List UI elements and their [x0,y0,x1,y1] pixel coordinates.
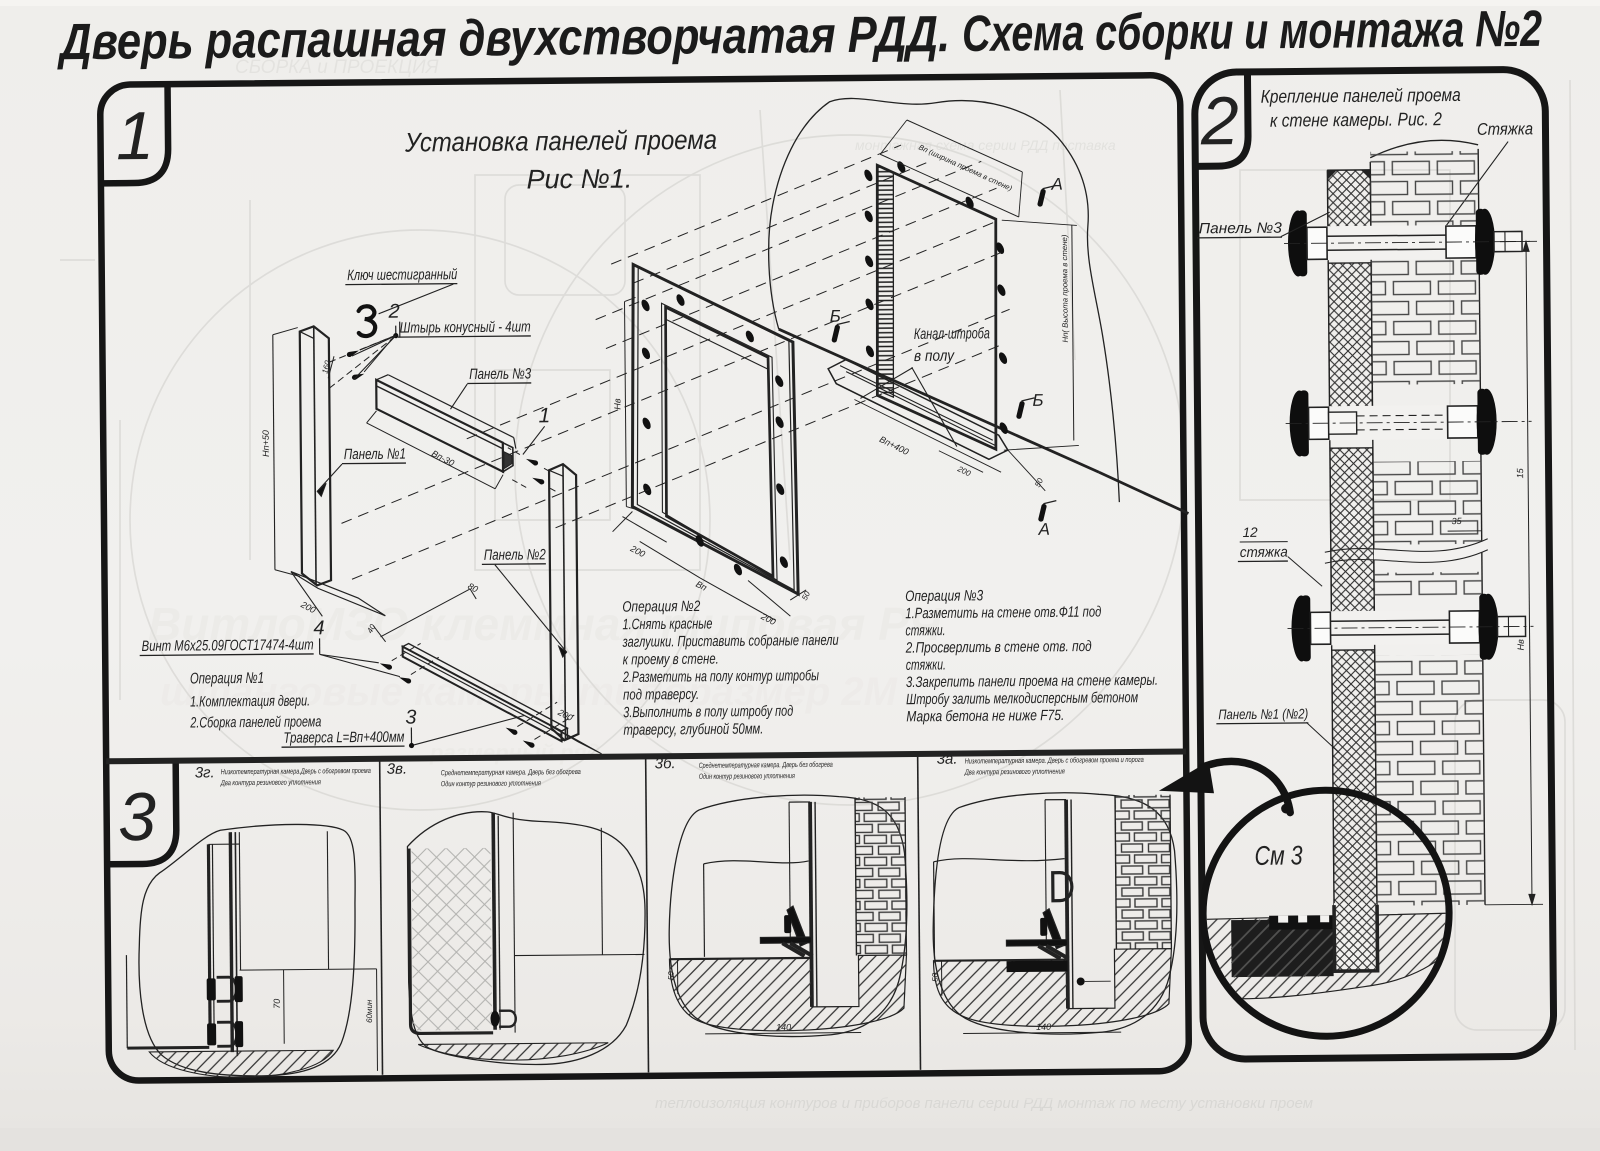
svg-text:Среднетемпературная камера. Дв: Среднетемпературная камера. Дверь без об… [441,767,581,777]
svg-text:Нв: Нв [1516,639,1526,651]
svg-text:Среднетемпературная камера. Дв: Среднетемпературная камера. Дверь без об… [699,760,833,770]
svg-text:80: 80 [466,581,479,594]
svg-text:60мин: 60мин [365,999,374,1023]
svg-text:35: 35 [1451,516,1462,526]
svg-text:2: 2 [1200,83,1240,159]
svg-text:140: 140 [776,1022,791,1032]
svg-text:Б: Б [1032,391,1043,410]
svg-text:1: 1 [538,404,550,427]
svg-text:Операция №1: Операция №1 [190,670,264,688]
svg-text:Схема сборки и монтажа №2: Схема сборки и монтажа №2 [962,0,1542,62]
svg-text:Винт М6х25.09ГОСТ17474-4шт: Винт М6х25.09ГОСТ17474-4шт [142,636,314,655]
svg-text:50: 50 [1033,476,1045,489]
svg-text:к стене камеры. Рис. 2: к стене камеры. Рис. 2 [1270,108,1443,131]
svg-text:Стяжка: Стяжка [1477,119,1533,139]
svg-text:Операция №3: Операция №3 [905,587,984,605]
svg-text:А: А [1038,520,1051,539]
svg-text:под траверсу.: под траверсу. [623,686,699,704]
svg-text:Траверса L=Вп+400мм: Траверса L=Вп+400мм [283,729,404,747]
svg-text:Рис №1.: Рис №1. [526,164,632,195]
svg-text:монтажная схема серии РДД пост: монтажная схема серии РДД поставка [855,137,1116,153]
svg-text:1: 1 [116,98,155,174]
svg-text:2.Просверлить в стене отв. п: 2.Просверлить в стене отв. под [905,638,1092,657]
svg-text:стяжки.: стяжки. [905,622,945,639]
svg-text:Панель №3: Панель №3 [1199,220,1283,238]
svg-text:Ключ шестигранный: Ключ шестигранный [347,266,458,284]
svg-text:3а.: 3а. [937,751,958,768]
svg-text:Б: Б [830,307,841,326]
svg-text:траверсу, глубиной 50мм.: траверсу, глубиной 50мм. [623,721,763,739]
svg-text:в полу: в полу [914,348,955,365]
svg-text:50: 50 [931,972,940,982]
svg-text:1.Разметить на стене отв.Ф11 п: 1.Разметить на стене отв.Ф11 под [905,603,1101,622]
svg-text:заглушки. Приставить собраные: заглушки. Приставить собраные панели [622,632,839,651]
svg-text:3: 3 [118,779,157,855]
svg-text:3в.: 3в. [387,761,407,778]
svg-text:15: 15 [1515,467,1525,478]
svg-text:размерный ряд: размерный ряд [429,740,600,765]
svg-text:Штробу залить мелкодисперсным: Штробу залить мелкодисперсным бетоном [906,689,1138,708]
svg-text:Панель №2: Панель №2 [484,546,547,564]
svg-text:3: 3 [405,706,416,728]
svg-text:Нв: Нв [612,398,622,410]
svg-text:Нп( Высота проема в стене): Нп( Высота проема в стене) [1060,234,1070,342]
svg-text:200: 200 [628,543,647,559]
svg-text:2: 2 [387,301,399,323]
svg-text:Вп-30: Вп-30 [430,448,456,468]
svg-text:Один контур резинового уплотне: Один контур резинового уплотнения [441,778,541,788]
svg-text:140: 140 [1036,1022,1051,1032]
svg-text:3.Выполнить в полу штробу под: 3.Выполнить в полу штробу под [623,703,793,722]
svg-text:Дверь распашная двухстворчатая: Дверь распашная двухстворчатая РДД. [56,5,950,70]
svg-text:2.Разметить на полу контур штр: 2.Разметить на полу контур штробы [622,667,819,686]
svg-text:3.Закрепить панели проема на с: 3.Закрепить панели проема на стене камер… [906,672,1158,691]
svg-text:Операция №2: Операция №2 [622,598,701,616]
svg-text:1.Комплектация двери.: 1.Комплектация двери. [190,692,310,710]
svg-text:Два контура резинового уплотне: Два контура резинового уплотнения [220,777,321,787]
svg-text:Два контура резинового уплотне: Два контура резинового уплотнения [964,767,1065,777]
svg-text:50: 50 [667,971,676,981]
svg-text:Низкотемпературная камера. Две: Низкотемпературная камера. Дверь с обогр… [965,755,1144,766]
svg-text:3г.: 3г. [195,764,215,781]
svg-text:к проему в стене.: к проему в стене. [623,651,719,669]
svg-text:А: А [1050,175,1063,194]
svg-text:70: 70 [272,999,282,1009]
svg-text:стяжки.: стяжки. [906,656,946,673]
svg-text:12: 12 [1243,525,1259,540]
svg-text:См 3: См 3 [1254,840,1302,870]
svg-text:Нп+50: Нп+50 [261,430,271,457]
svg-text:Установка панелей проема: Установка панелей проема [404,125,717,158]
svg-text:160: 160 [320,359,332,375]
svg-text:Панель №1: Панель №1 [344,446,406,464]
svg-text:Канал-штроба: Канал-штроба [914,325,990,343]
svg-text:Панель №3: Панель №3 [469,365,532,383]
svg-text:1.Снять красные: 1.Снять красные [622,615,712,633]
svg-text:Марка бетона не ниже F75.: Марка бетона не ниже F75. [906,707,1064,725]
svg-text:Штырь конусный - 4шт: Штырь конусный - 4шт [400,318,531,336]
svg-text:4: 4 [313,617,324,639]
svg-text:Панель №1 (№2): Панель №1 (№2) [1218,705,1308,722]
svg-text:Один контур резинового уплотне: Один контур резинового уплотнения [699,771,795,781]
svg-text:Крепление панелей проема: Крепление панелей проема [1261,84,1461,107]
svg-text:Низкотемпературная камера.Двер: Низкотемпературная камера.Дверь с обогре… [221,766,371,776]
svg-text:стяжка: стяжка [1240,545,1288,561]
svg-text:3б.: 3б. [655,755,676,772]
svg-text:Вп+400: Вп+400 [878,434,910,457]
